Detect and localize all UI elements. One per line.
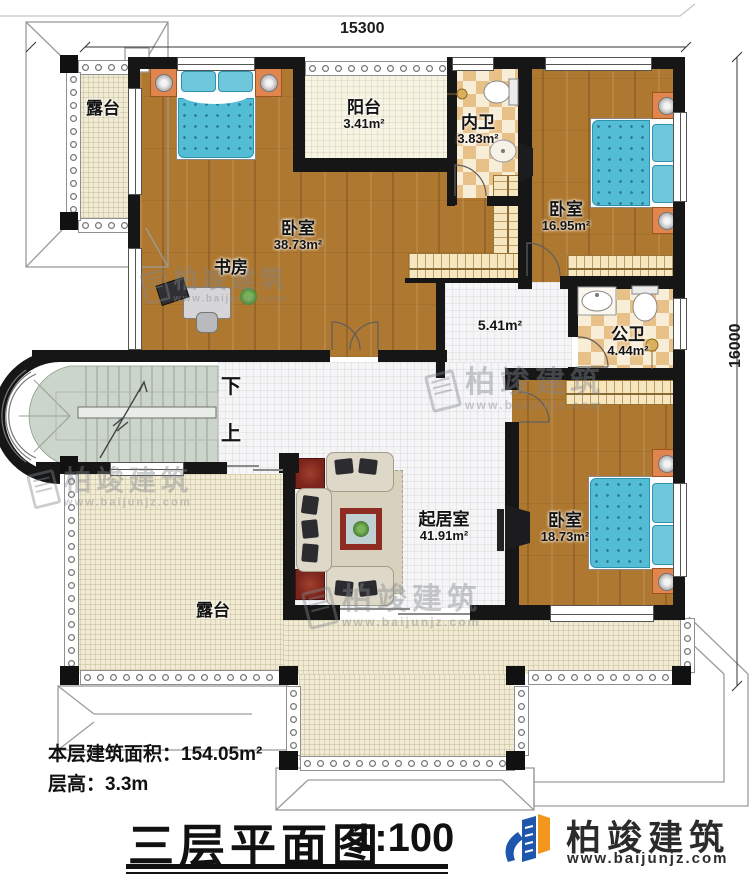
label-terrace-south: 露台: [196, 601, 230, 620]
wall-balcony-south: [293, 158, 457, 172]
wall-bedroom-ne-west: [518, 57, 532, 289]
wall-master-south-b: [378, 350, 447, 362]
bedroom-ne-blanket: [592, 120, 650, 206]
label-hallway-area: 5.41m²: [478, 318, 522, 334]
wall-bedroom-ne-south-b: [560, 276, 685, 289]
balustrade-terrace-right: [680, 618, 695, 673]
column: [506, 666, 525, 685]
balustrade-bump-bottom: [300, 756, 515, 771]
label-terrace-nw: 露台: [86, 99, 120, 118]
wall-ensuite-south-b: [487, 196, 520, 206]
wall-corridor-west: [436, 282, 445, 378]
company-logo-icon: [498, 806, 564, 872]
wall-bedroom-ne-south-a: [518, 276, 525, 289]
wall-balcony-west: [293, 57, 305, 162]
dimension-right: 16000: [727, 324, 745, 369]
watermark-website: www.baijunjz.com: [173, 293, 288, 306]
watermark-company: 柏竣建筑: [64, 468, 193, 496]
pillow: [218, 71, 253, 92]
terrace-south-floor-bump: [299, 674, 514, 760]
window-master-west-1: [128, 88, 142, 195]
column: [60, 666, 79, 685]
watermark-logo-icon: [26, 469, 61, 510]
watermark: 柏竣建筑 www.baijunjz.com: [30, 468, 193, 510]
coffee-table: [340, 508, 382, 550]
wall-ensuite-south-a: [447, 196, 455, 206]
balustrade-terrace-nw-top: [78, 60, 130, 75]
window-publicbath-east: [673, 298, 687, 350]
watermark-company: 柏竣建筑: [342, 585, 482, 615]
window-bedroom-ne-east: [673, 112, 687, 202]
balustrade-terrace-nw-bottom: [78, 218, 130, 233]
watermark-company: 柏竣建筑: [465, 368, 605, 398]
note-floor-area: 本层建筑面积：154.05m²: [48, 740, 262, 770]
wall-bedroom-se-west-b: [505, 422, 519, 610]
pillow: [181, 71, 216, 92]
column: [279, 666, 298, 685]
watermark-logo-icon: [140, 269, 171, 305]
note-floor-height: 层高：3.3m: [48, 770, 262, 800]
label-public-bath: 公卫4.44m²: [607, 325, 648, 359]
watermark-website: www.baijunjz.com: [465, 398, 605, 414]
wall-living-west: [283, 462, 295, 620]
watermark-logo-icon: [301, 586, 339, 630]
company-website: www.baijunjz.com: [567, 850, 728, 867]
wall-under-closet: [405, 278, 518, 283]
watermark-website: www.baijunjz.com: [64, 496, 193, 510]
label-bedroom-se: 卧室18.73m²: [541, 511, 589, 545]
nightstand: [255, 68, 282, 97]
label-master-bedroom: 卧室38.73m²: [274, 219, 322, 253]
balustrade-terrace-row-west: [80, 670, 282, 685]
window-bedroom-se-south: [550, 605, 654, 622]
label-ensuite-bath: 内卫3.83m²: [457, 113, 498, 147]
window-master-north: [177, 57, 255, 71]
sofa-top: [326, 452, 394, 492]
watermark-logo-icon: [424, 369, 462, 413]
column: [506, 751, 525, 770]
bedroom-se-blanket: [590, 478, 650, 568]
balustrade-terrace-nw-left: [66, 72, 81, 221]
balustrade-terrace-row-east: [528, 670, 677, 685]
title-underline-thin: [126, 872, 448, 874]
floor-notes: 本层建筑面积：154.05m² 层高：3.3m: [48, 740, 262, 801]
balustrade-balcony: [305, 61, 449, 76]
wall-ensuite-west: [447, 57, 457, 205]
study-chair: [196, 312, 218, 333]
column: [60, 55, 78, 73]
end-table: [295, 458, 325, 489]
label-study: 书房: [214, 258, 248, 277]
wall-publicbath-west-a: [568, 289, 578, 337]
watermark-website: www.baijunjz.com: [342, 615, 482, 631]
sofa-left: [296, 488, 332, 572]
plan-scale: 1:100: [352, 816, 454, 861]
master-bed-blanket: [178, 98, 254, 158]
terrace-nw-floor: [78, 62, 128, 230]
column: [60, 212, 78, 230]
watermark: 柏竣建筑 www.baijunjz.com: [305, 585, 482, 631]
title-underline: [126, 864, 448, 869]
label-stairs-down: 下: [221, 376, 241, 398]
wall-bottom-b: [470, 605, 550, 620]
closet-master-east: [493, 175, 520, 255]
pillow: [652, 165, 675, 203]
label-stairs-up: 上: [221, 423, 241, 445]
dimension-top: 15300: [340, 20, 385, 38]
label-bedroom-ne: 卧室16.95m²: [542, 200, 590, 234]
watermark: 柏竣建筑 www.baijunjz.com: [428, 368, 605, 414]
wall-bottom-c: [652, 605, 685, 620]
column: [672, 666, 691, 685]
column: [279, 751, 298, 770]
window-bedroom-se-east: [673, 483, 687, 577]
window-ensuite-north: [452, 57, 494, 71]
pillow: [652, 124, 675, 162]
balustrade-bump-left: [286, 686, 301, 756]
wall-master-south-a: [32, 350, 330, 362]
window-bedroom-ne-north: [545, 57, 652, 71]
floor-plan: 柏竣建筑 www.baijunjz.com 柏竣建筑 www.baijunjz.…: [0, 0, 750, 885]
window-study-west: [128, 248, 142, 350]
label-balcony: 阳台3.41m²: [343, 98, 384, 132]
sliding-door-stairhall: [227, 464, 283, 473]
nightstand: [150, 68, 177, 97]
balustrade-bump-right: [514, 686, 529, 756]
label-living-room: 起居室41.91m²: [419, 510, 470, 544]
